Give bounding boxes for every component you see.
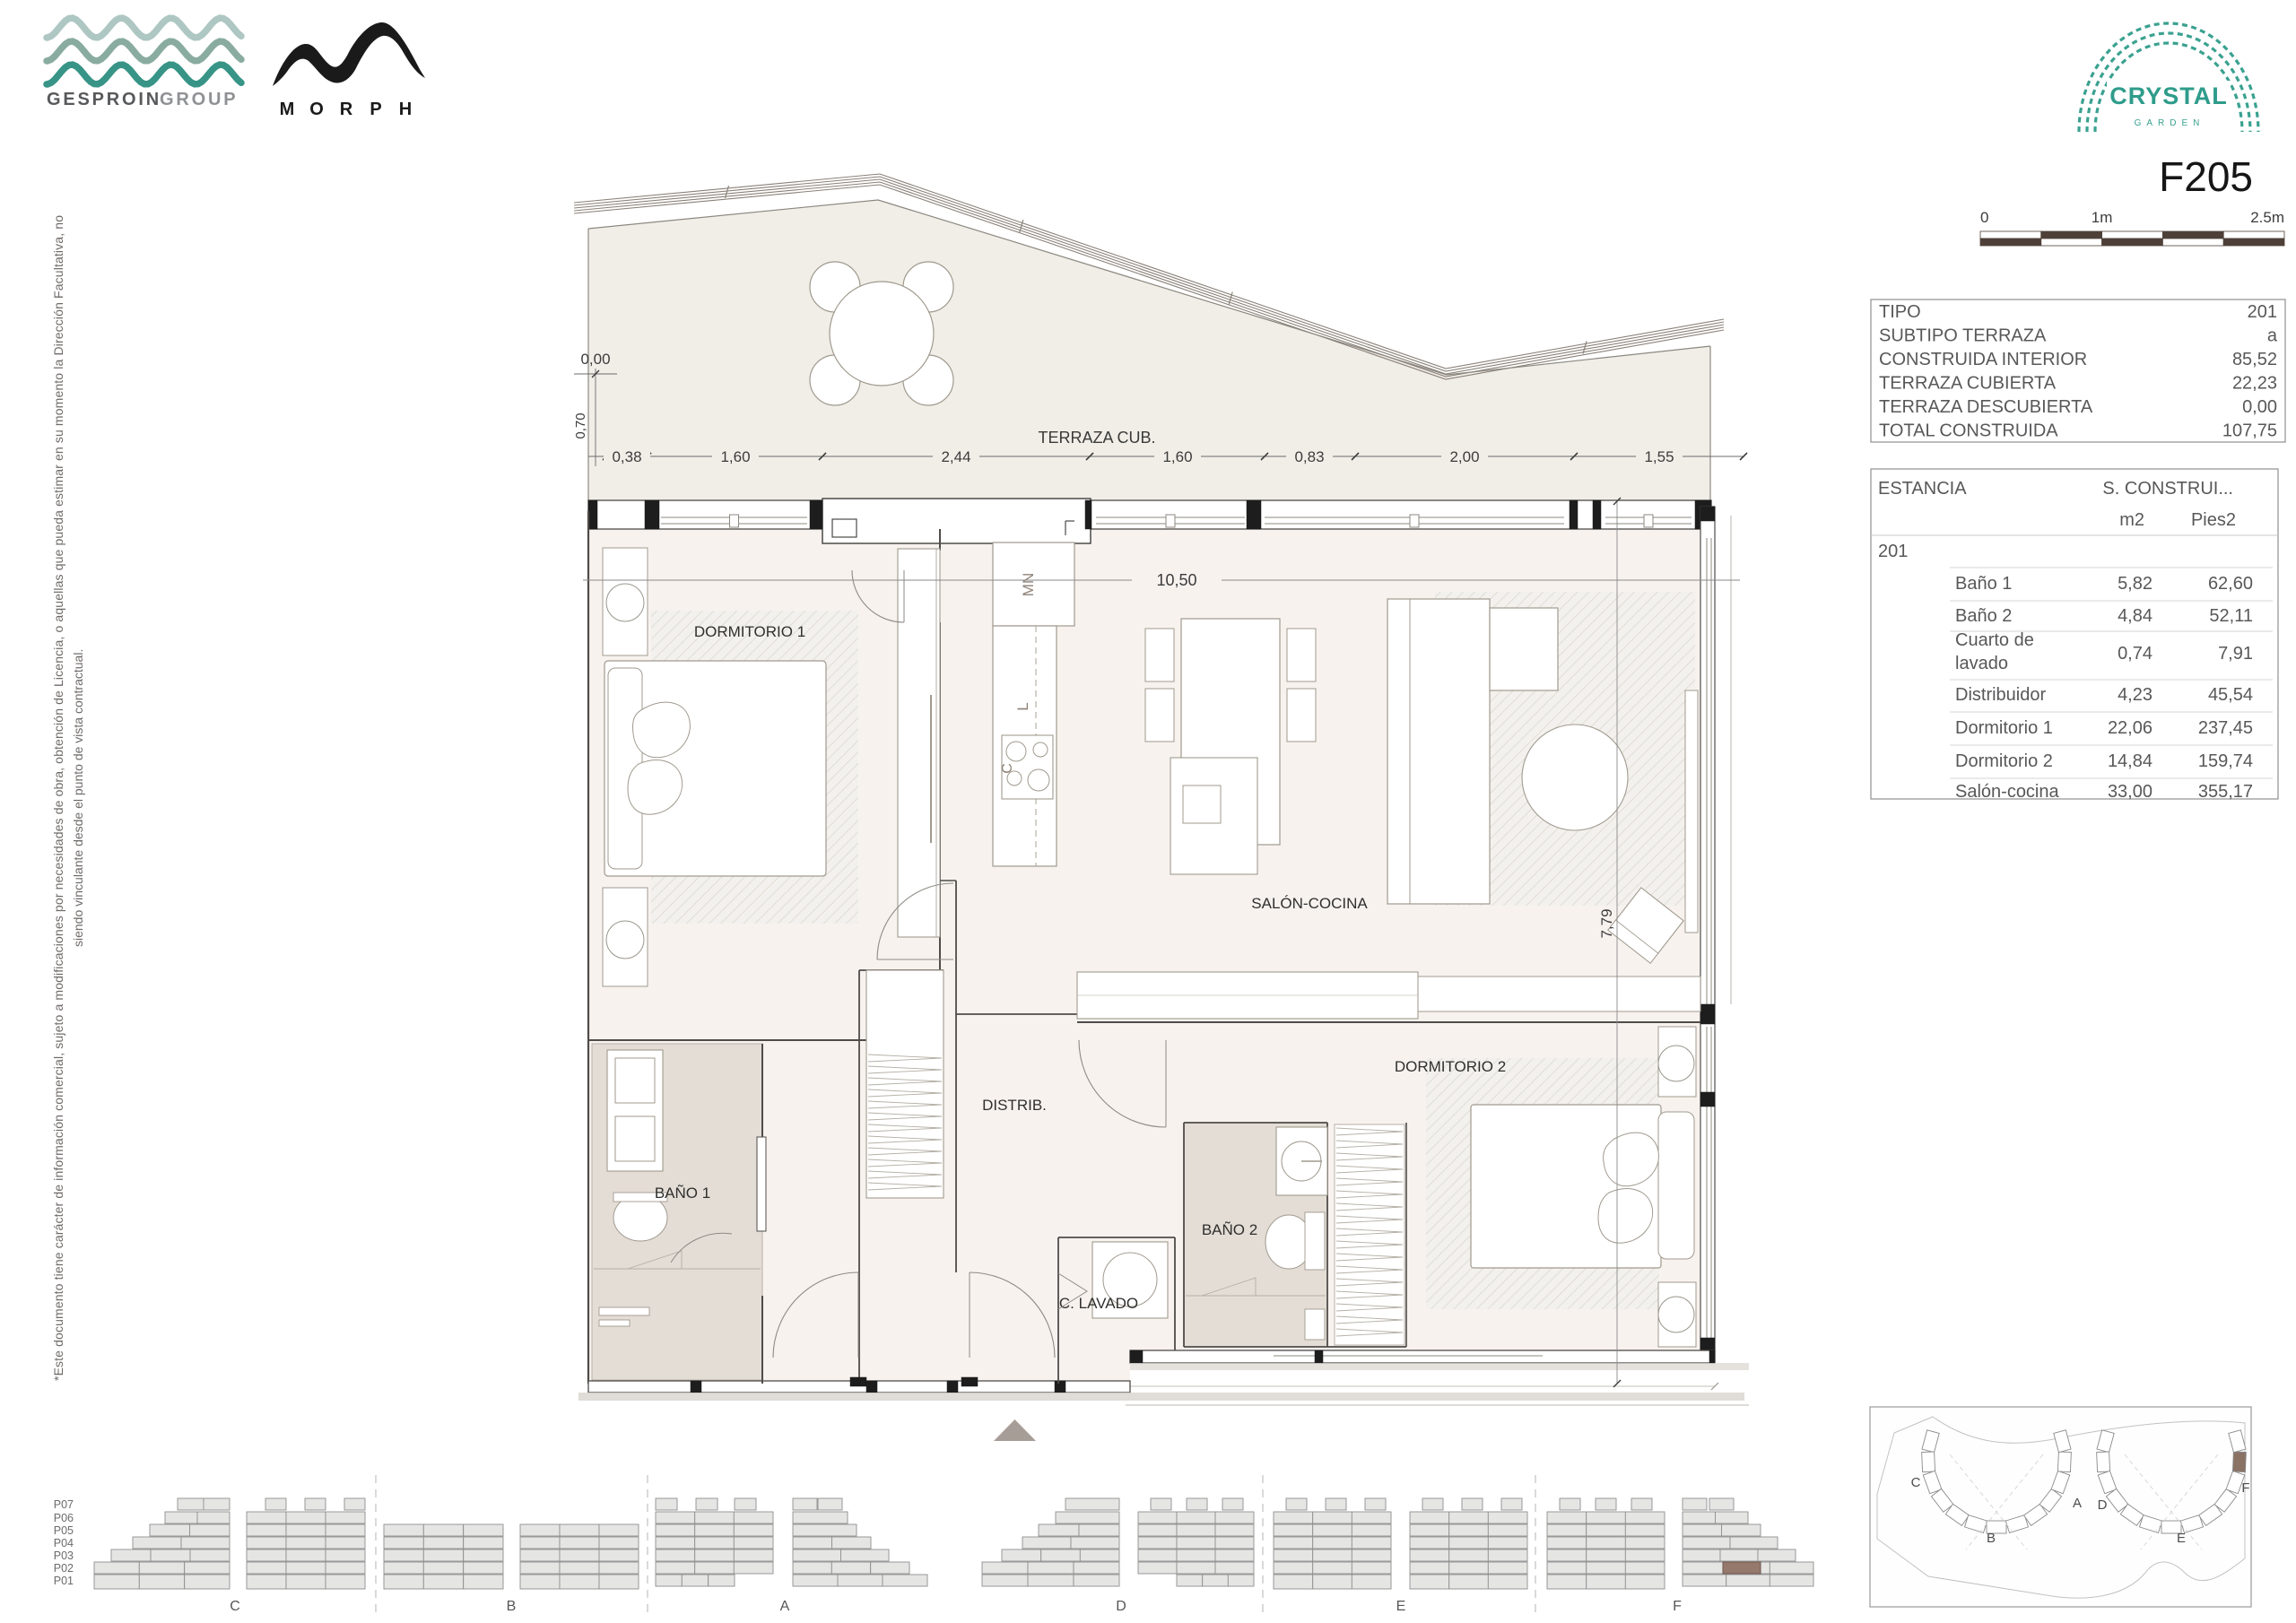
svg-text:159,74: 159,74 xyxy=(2198,751,2253,771)
svg-text:201: 201 xyxy=(1878,542,1908,561)
svg-text:BAÑO 1: BAÑO 1 xyxy=(655,1185,710,1202)
svg-text:DISTRIB.: DISTRIB. xyxy=(982,1097,1047,1114)
svg-text:F205: F205 xyxy=(2159,153,2253,200)
svg-text:1m: 1m xyxy=(2092,209,2113,226)
svg-text:D: D xyxy=(2098,1497,2108,1513)
svg-text:33,00: 33,00 xyxy=(2108,782,2152,802)
svg-text:Dormitorio 2: Dormitorio 2 xyxy=(1955,751,2053,771)
svg-text:DORMITORIO 1: DORMITORIO 1 xyxy=(694,623,805,640)
svg-text:45,54: 45,54 xyxy=(2208,685,2253,705)
svg-text:Salón-cocina: Salón-cocina xyxy=(1955,782,2060,802)
svg-text:0,74: 0,74 xyxy=(2118,644,2152,664)
svg-text:62,60: 62,60 xyxy=(2208,574,2253,594)
svg-text:A: A xyxy=(780,1599,790,1614)
svg-text:O: O xyxy=(309,100,324,119)
svg-text:C: C xyxy=(230,1599,240,1614)
svg-text:C: C xyxy=(1000,763,1015,774)
svg-text:TERRAZA CUBIERTA: TERRAZA CUBIERTA xyxy=(1879,374,2057,394)
svg-text:GESPROIN: GESPROIN xyxy=(47,90,161,109)
svg-text:0,00: 0,00 xyxy=(2242,397,2277,417)
svg-text:CONSTRUIDA INTERIOR: CONSTRUIDA INTERIOR xyxy=(1879,350,2087,369)
svg-text:107,75: 107,75 xyxy=(2222,421,2277,441)
svg-text:E: E xyxy=(2177,1531,2186,1546)
svg-text:0: 0 xyxy=(1980,209,1988,226)
svg-text:Dormitorio 1: Dormitorio 1 xyxy=(1955,718,2053,738)
svg-text:P03: P03 xyxy=(54,1549,74,1562)
svg-text:Baño 2: Baño 2 xyxy=(1955,606,2012,626)
svg-text:52,11: 52,11 xyxy=(2209,606,2253,626)
svg-text:L: L xyxy=(1014,702,1031,710)
svg-text:Cuarto de: Cuarto de xyxy=(1955,630,2034,650)
svg-text:H: H xyxy=(399,100,412,119)
svg-text:2,44: 2,44 xyxy=(941,448,970,465)
svg-text:D: D xyxy=(1116,1599,1126,1614)
svg-text:E: E xyxy=(1396,1599,1406,1614)
svg-text:B: B xyxy=(507,1599,517,1614)
svg-text:BAÑO 2: BAÑO 2 xyxy=(1202,1221,1257,1238)
svg-text:SUBTIPO TERRAZA: SUBTIPO TERRAZA xyxy=(1879,326,2047,346)
svg-text:14,84: 14,84 xyxy=(2108,751,2152,771)
svg-text:F: F xyxy=(1673,1599,1682,1614)
svg-text:4,84: 4,84 xyxy=(2118,606,2152,626)
svg-text:0,00: 0,00 xyxy=(580,351,610,368)
svg-text:7,91: 7,91 xyxy=(2218,644,2253,664)
svg-text:P: P xyxy=(370,100,381,119)
svg-text:R: R xyxy=(340,100,353,119)
svg-text:B: B xyxy=(1987,1531,1996,1546)
svg-text:0,83: 0,83 xyxy=(1294,448,1324,465)
svg-text:1,60: 1,60 xyxy=(720,448,750,465)
svg-text:85,52: 85,52 xyxy=(2232,350,2277,369)
svg-text:lavado: lavado xyxy=(1955,654,2008,673)
svg-text:A: A xyxy=(2073,1496,2082,1511)
svg-text:ESTANCIA: ESTANCIA xyxy=(1878,479,1967,499)
svg-text:1,60: 1,60 xyxy=(1162,448,1192,465)
svg-text:1,55: 1,55 xyxy=(1644,448,1674,465)
svg-text:GARDEN: GARDEN xyxy=(2135,118,2205,128)
svg-text:Baño 1: Baño 1 xyxy=(1955,574,2012,594)
svg-text:22,06: 22,06 xyxy=(2108,718,2152,738)
svg-text:10,50: 10,50 xyxy=(1156,571,1196,589)
svg-text:DORMITORIO 2: DORMITORIO 2 xyxy=(1395,1058,1506,1075)
svg-text:22,23: 22,23 xyxy=(2232,374,2277,394)
svg-text:m2: m2 xyxy=(2119,510,2144,530)
svg-text:MN: MN xyxy=(1020,573,1037,596)
svg-text:4,23: 4,23 xyxy=(2118,685,2152,705)
svg-text:P06: P06 xyxy=(54,1512,74,1524)
svg-text:a: a xyxy=(2267,326,2278,346)
svg-text:7,79: 7,79 xyxy=(1598,908,1615,938)
svg-text:SALÓN-COCINA: SALÓN-COCINA xyxy=(1251,895,1368,912)
svg-text:2,00: 2,00 xyxy=(1449,448,1479,465)
svg-text:Pies2: Pies2 xyxy=(2191,510,2236,530)
svg-text:0,70: 0,70 xyxy=(573,412,588,438)
svg-text:2.5m: 2.5m xyxy=(2250,209,2284,226)
svg-text:CRYSTAL: CRYSTAL xyxy=(2109,82,2228,109)
svg-text:GROUP: GROUP xyxy=(160,90,238,109)
svg-text:P01: P01 xyxy=(54,1575,74,1587)
svg-text:P07: P07 xyxy=(54,1498,74,1511)
svg-text:M: M xyxy=(280,100,295,119)
svg-text:TIPO: TIPO xyxy=(1879,302,1921,322)
svg-text:S. CONSTRUI...: S. CONSTRUI... xyxy=(2102,479,2233,499)
svg-text:P04: P04 xyxy=(54,1537,74,1549)
svg-text:C: C xyxy=(1911,1475,1921,1490)
svg-text:TOTAL CONSTRUIDA: TOTAL CONSTRUIDA xyxy=(1879,421,2058,441)
svg-text:siendo vinculante desde el pun: siendo vinculante desde el punto de vist… xyxy=(71,649,85,947)
svg-text:Distribuidor: Distribuidor xyxy=(1955,685,2046,705)
svg-text:C. LAVADO: C. LAVADO xyxy=(1059,1295,1138,1312)
svg-text:355,17: 355,17 xyxy=(2198,782,2253,802)
svg-text:237,45: 237,45 xyxy=(2198,718,2253,738)
svg-text:P05: P05 xyxy=(54,1524,74,1537)
svg-text:TERRAZA DESCUBIERTA: TERRAZA DESCUBIERTA xyxy=(1879,397,2093,417)
svg-text:*Este documento tiene carácter: *Este documento tiene carácter de inform… xyxy=(51,215,65,1381)
svg-text:0,38: 0,38 xyxy=(612,448,641,465)
svg-text:201: 201 xyxy=(2248,302,2277,322)
svg-text:P02: P02 xyxy=(54,1562,74,1575)
svg-text:5,82: 5,82 xyxy=(2118,574,2152,594)
svg-text:F: F xyxy=(2241,1480,2249,1496)
svg-text:TERRAZA CUB.: TERRAZA CUB. xyxy=(1038,429,1155,447)
